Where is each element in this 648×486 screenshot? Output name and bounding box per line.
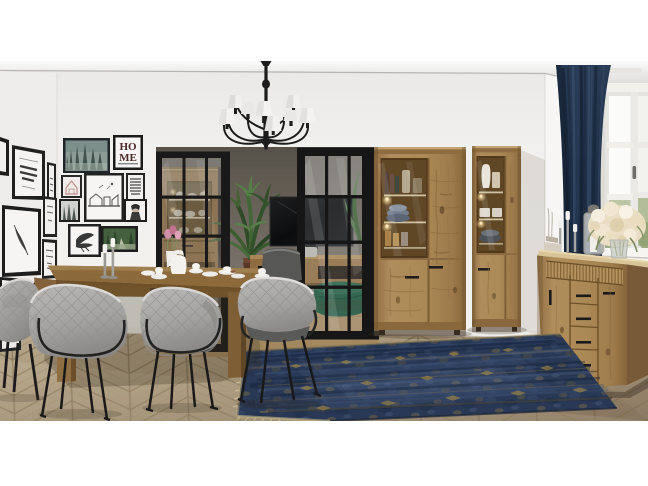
svg-text:ME: ME xyxy=(119,152,137,164)
